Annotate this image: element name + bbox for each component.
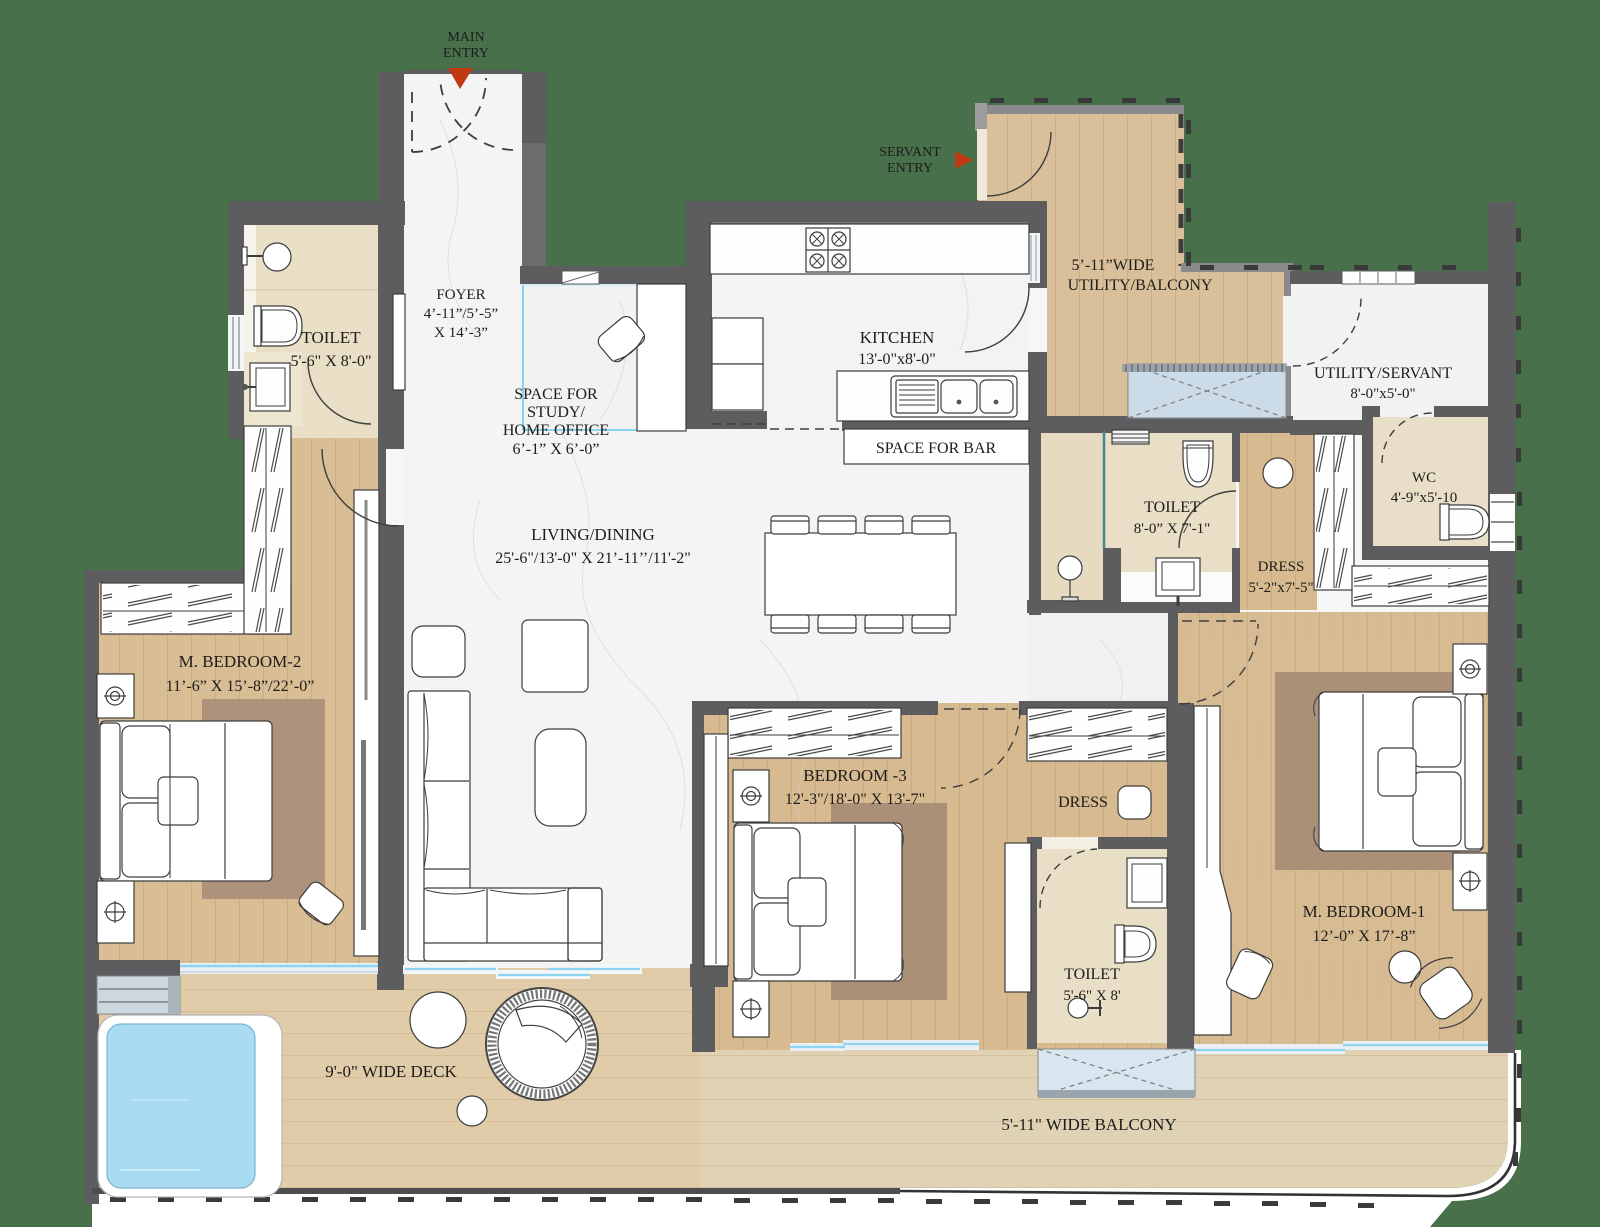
svg-text:5'-2"x7'-5": 5'-2"x7'-5" [1248, 580, 1313, 596]
svg-text:SPACE FOR BAR: SPACE FOR BAR [876, 440, 997, 457]
svg-text:5’-11”WIDE: 5’-11”WIDE [1072, 257, 1155, 274]
svg-text:TOILET: TOILET [301, 328, 361, 347]
svg-text:8'-0” X 7'-1": 8'-0” X 7'-1" [1134, 521, 1211, 537]
svg-text:UTILITY/SERVANT: UTILITY/SERVANT [1314, 365, 1452, 382]
svg-text:8'-0"x5'-0": 8'-0"x5'-0" [1350, 386, 1415, 402]
svg-text:12'-3"/18'-0" X 13'-7": 12'-3"/18'-0" X 13'-7" [785, 791, 925, 808]
svg-text:HOME OFFICE: HOME OFFICE [503, 422, 609, 439]
svg-text:BEDROOM -3: BEDROOM -3 [803, 766, 906, 785]
svg-text:UTILITY/BALCONY: UTILITY/BALCONY [1068, 277, 1213, 294]
svg-text:STUDY/: STUDY/ [527, 404, 585, 421]
svg-text:12’-0” X 17’-8”: 12’-0” X 17’-8” [1312, 928, 1415, 945]
svg-text:WC: WC [1412, 470, 1436, 486]
svg-text:5'-11" WIDE BALCONY: 5'-11" WIDE BALCONY [1001, 1115, 1176, 1134]
svg-text:TOILET: TOILET [1064, 966, 1120, 983]
svg-text:M. BEDROOM-1: M. BEDROOM-1 [1303, 902, 1426, 921]
svg-text:6’-1” X 6’-0”: 6’-1” X 6’-0” [512, 441, 599, 458]
svg-text:SPACE FOR: SPACE FOR [514, 386, 598, 403]
svg-text:ENTRY: ENTRY [887, 161, 933, 176]
svg-text:M. BEDROOM-2: M. BEDROOM-2 [179, 652, 302, 671]
svg-text:DRESS: DRESS [1258, 559, 1305, 575]
svg-text:X 14’-3”: X 14’-3” [434, 325, 488, 341]
svg-text:KITCHEN: KITCHEN [860, 328, 935, 347]
svg-text:4’-11”/5’-5”: 4’-11”/5’-5” [424, 306, 498, 322]
svg-text:4'-9"x5'-10: 4'-9"x5'-10 [1391, 490, 1458, 506]
svg-text:DRESS: DRESS [1058, 794, 1108, 811]
svg-text:TOILET: TOILET [1144, 499, 1200, 516]
svg-text:MAIN: MAIN [447, 30, 484, 45]
svg-text:FOYER: FOYER [436, 287, 485, 303]
svg-text:5'-6" X 8'-0": 5'-6" X 8'-0" [290, 353, 371, 370]
svg-text:25'-6"/13'-0" X 21’-11’’/11'-2: 25'-6"/13'-0" X 21’-11’’/11'-2" [495, 550, 691, 567]
svg-text:LIVING/DINING: LIVING/DINING [531, 525, 655, 544]
svg-text:9'-0" WIDE DECK: 9'-0" WIDE DECK [325, 1062, 457, 1081]
svg-text:SERVANT: SERVANT [879, 145, 941, 160]
svg-text:13'-0"x8'-0": 13'-0"x8'-0" [858, 351, 935, 368]
svg-text:ENTRY: ENTRY [443, 46, 489, 61]
svg-text:11’-6” X 15’-8”/22’-0”: 11’-6” X 15’-8”/22’-0” [166, 678, 315, 695]
svg-text:5'-6" X 8': 5'-6" X 8' [1063, 988, 1121, 1004]
